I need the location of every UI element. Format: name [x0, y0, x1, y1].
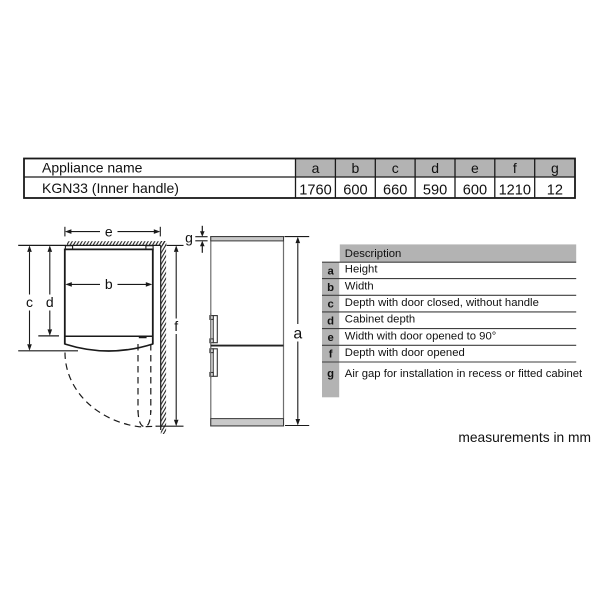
svg-text:590: 590 — [423, 183, 447, 199]
svg-text:1210: 1210 — [499, 183, 531, 199]
svg-text:c: c — [392, 160, 399, 176]
svg-text:12: 12 — [547, 183, 563, 199]
svg-text:d: d — [431, 160, 439, 176]
svg-text:Height: Height — [345, 264, 379, 276]
svg-text:600: 600 — [463, 183, 487, 199]
svg-text:f: f — [329, 349, 333, 361]
svg-text:g: g — [185, 229, 193, 245]
svg-text:Depth with door opened: Depth with door opened — [345, 347, 465, 359]
svg-text:e: e — [105, 223, 113, 239]
svg-text:Depth with door closed, withou: Depth with door closed, without handle — [345, 297, 539, 309]
svg-text:b: b — [327, 282, 334, 294]
svg-text:c: c — [327, 299, 333, 311]
svg-text:1760: 1760 — [299, 183, 331, 199]
svg-text:f: f — [513, 160, 517, 176]
svg-text:Width: Width — [345, 280, 374, 292]
svg-text:e: e — [471, 160, 479, 176]
svg-text:660: 660 — [383, 183, 407, 199]
svg-text:f: f — [174, 318, 178, 334]
svg-text:Appliance name: Appliance name — [42, 159, 143, 175]
svg-text:g: g — [551, 160, 559, 176]
svg-text:d: d — [327, 315, 334, 327]
svg-text:d: d — [46, 294, 54, 310]
svg-text:KGN33 (Inner handle): KGN33 (Inner handle) — [42, 180, 179, 196]
svg-text:Width with door opened to 90°: Width with door opened to 90° — [345, 330, 496, 342]
svg-text:measurements in mm: measurements in mm — [458, 430, 591, 445]
svg-text:g: g — [327, 368, 334, 380]
svg-text:600: 600 — [343, 183, 367, 199]
svg-text:Air gap for installation in re: Air gap for installation in recess or fi… — [345, 368, 583, 380]
svg-text:e: e — [327, 332, 333, 344]
svg-text:a: a — [312, 160, 320, 176]
svg-text:Description: Description — [345, 248, 402, 260]
svg-text:c: c — [26, 294, 33, 310]
svg-text:a: a — [327, 265, 334, 277]
svg-text:b: b — [352, 160, 360, 176]
svg-text:b: b — [105, 276, 113, 292]
svg-text:Cabinet depth: Cabinet depth — [345, 314, 415, 326]
svg-text:a: a — [293, 325, 302, 342]
